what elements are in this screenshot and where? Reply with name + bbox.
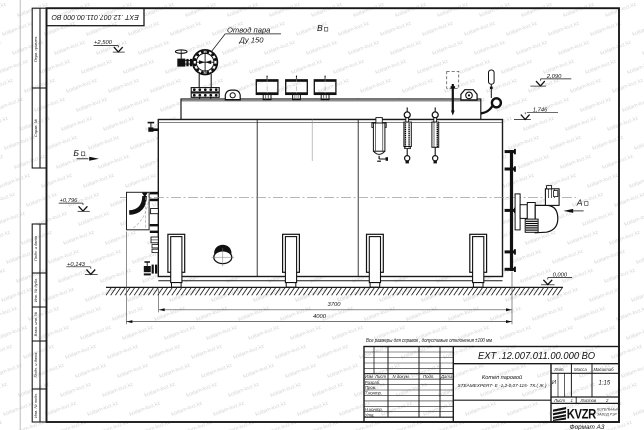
svg-text:И: И [552,380,556,386]
svg-text:4000: 4000 [313,314,327,320]
svg-text:STEAMEXPERT- E -1,2-0,07-115-: STEAMEXPERT- E -1,2-0,07-115- ТК.( Ж ) [458,383,547,389]
svg-text:Листов: Листов [580,398,597,403]
svg-text:Инв. № подл.: Инв. № подл. [33,393,38,418]
svg-text:1:15: 1:15 [599,381,611,387]
svg-text:КОТЕЛЬНЫЙ: КОТЕЛЬНЫЙ [597,407,620,411]
svg-text:KVZR: KVZR [567,407,596,422]
svg-text:Изм: Изм [365,374,373,379]
svg-text:Взам. инв. №: Взам. инв. № [33,311,38,336]
svg-text:Отвод пара: Отвод пара [227,26,270,35]
svg-text:Н.контр.: Н.контр. [365,407,383,412]
svg-text:Пров.: Пров. [365,385,376,390]
svg-text:Перв. примен.: Перв. примен. [33,36,38,63]
svg-text:Подп. и дата: Подп. и дата [33,235,38,261]
svg-text:Лит.: Лит. [554,367,565,372]
svg-text:Инв. № дубл.: Инв. № дубл. [33,278,38,303]
svg-text:Дата: Дата [440,374,453,379]
svg-text:Формат А3: Формат А3 [570,424,605,430]
svg-text:3700: 3700 [328,302,342,308]
svg-text:Лист: Лист [553,398,565,403]
svg-text:Утв.: Утв. [365,412,375,417]
svg-text:Все размеры для справок , допу: Все размеры для справок , допустимые отк… [366,338,492,344]
svg-text:+2,500: +2,500 [94,40,113,46]
svg-text:Подп.: Подп. [423,374,434,379]
svg-text:N докум.: N докум. [393,374,410,379]
svg-text:Масса: Масса [574,367,587,372]
svg-text:Разраб.: Разраб. [365,380,381,385]
svg-text:EXT .12.007.011.00.000 ВО: EXT .12.007.011.00.000 ВО [478,351,595,362]
svg-text:Ду 150: Ду 150 [239,35,265,44]
svg-text:Подп. и дата: Подп. и дата [33,352,38,378]
svg-text:Котел паровой: Котел паровой [482,374,522,381]
svg-text:ЗАВОД РЭР: ЗАВОД РЭР [597,412,618,416]
svg-text:Б: Б [73,148,79,158]
svg-text:Т.контр.: Т.контр. [365,391,382,396]
svg-text:A: A [576,197,583,207]
svg-text:Масштаб: Масштаб [594,367,615,372]
svg-text:Справ. №: Справ. № [33,118,38,137]
svg-text:Лист: Лист [374,374,386,379]
svg-text:EXT .12.007.011.00.000 ВО: EXT .12.007.011.00.000 ВО [51,13,139,20]
svg-text:В: В [317,23,323,33]
